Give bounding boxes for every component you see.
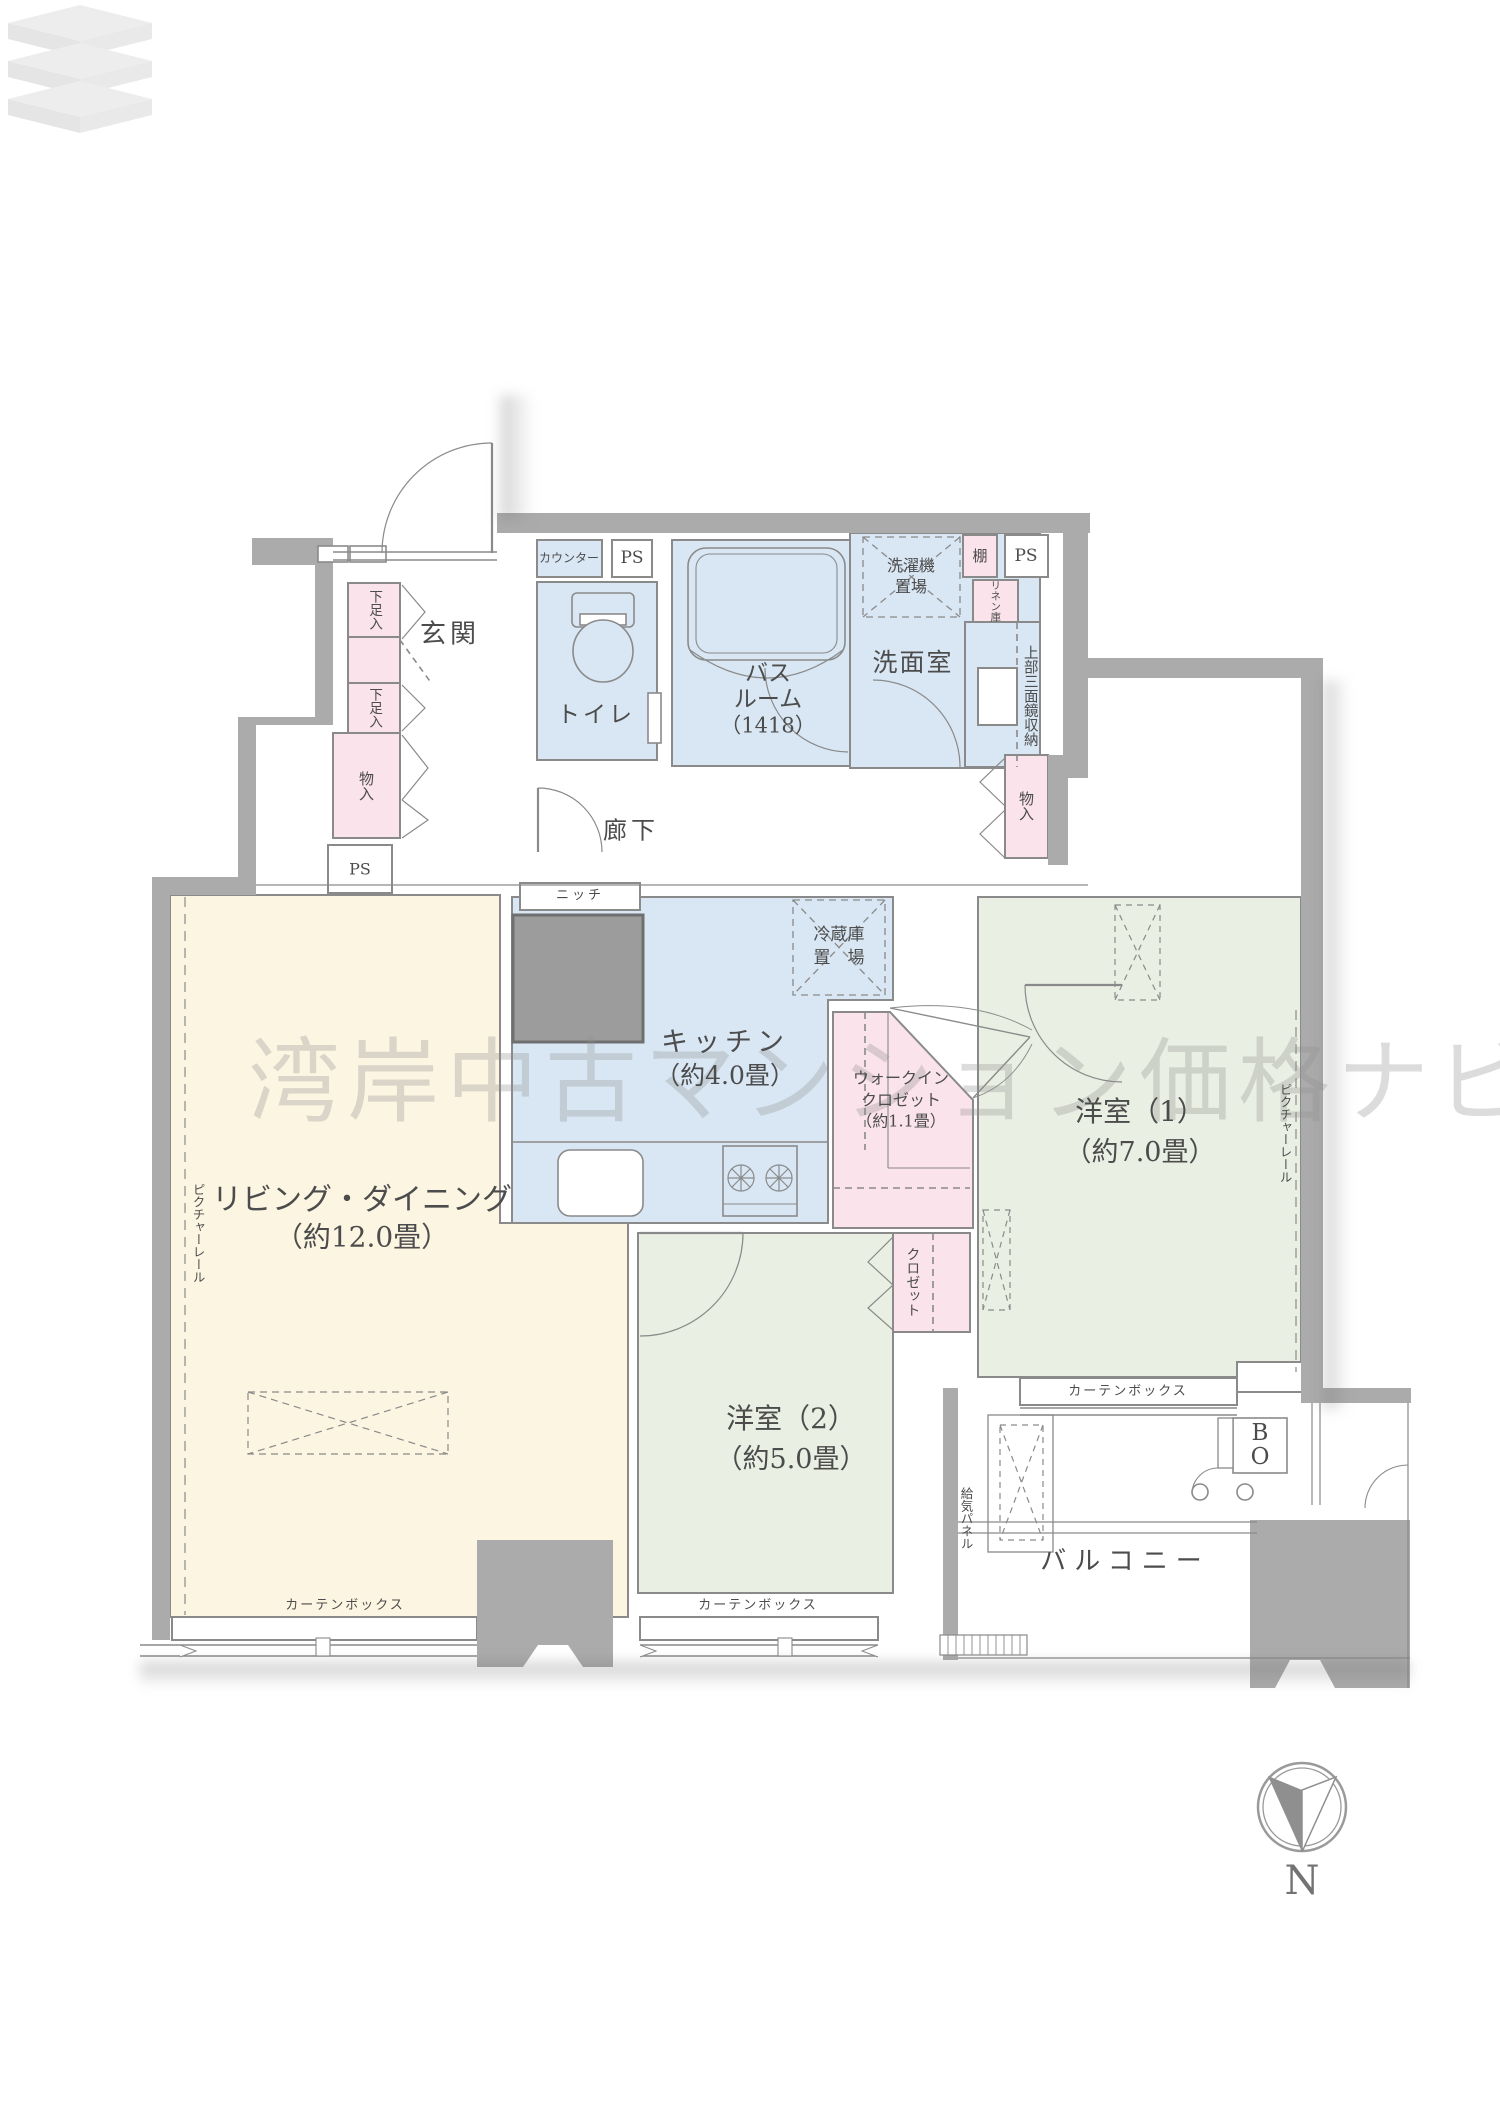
ps-label-left: PS	[349, 859, 371, 878]
bedroom2-label-size: （約5.0畳）	[716, 1440, 867, 1481]
bo-label-line1: B	[1251, 1421, 1270, 1445]
entry-door-arc	[382, 443, 492, 553]
shoe-cabinet-label-1: 下足入	[366, 590, 382, 631]
laundry-label: 洗濯機 置場	[887, 556, 935, 598]
living-dining-label-size: （約12.0畳）	[212, 1219, 512, 1255]
fridge-label: 冷蔵庫 置 場	[814, 924, 865, 970]
curtain-box-label-b2: カーテンボックス	[698, 1598, 818, 1614]
living-dining-label: リビング・ダイニング （約12.0畳）	[212, 1180, 512, 1255]
air-supply-panel-label: 給気パネル	[959, 1487, 974, 1550]
kitchen-label: キッチン （約4.0畳）	[655, 1025, 795, 1093]
niche-label: ニッチ	[556, 888, 604, 904]
bedroom1-label-name: 洋室（1）	[1065, 1091, 1216, 1133]
bathroom-label-line3: （1418）	[720, 713, 815, 737]
living-dining-label-name: リビング・ダイニング	[212, 1180, 512, 1219]
curtain-box-b2	[640, 1617, 878, 1640]
ps-box-bedroom1	[1237, 1362, 1305, 1392]
toilet-label: トイレ	[557, 702, 635, 730]
bathroom-label-line1: バス	[720, 660, 815, 686]
compass-n-label: N	[1285, 1857, 1320, 1905]
picture-rail-label-left: ピクチャーレール	[191, 1183, 206, 1283]
shoe-cabinet-label-2: 下足入	[366, 688, 382, 729]
bedroom2-label: 洋室（2） （約5.0畳）	[716, 1398, 867, 1481]
bedroom2-label-name: 洋室（2）	[716, 1398, 867, 1440]
wic-label-line1: ウォークイン	[853, 1068, 949, 1090]
fridge-label-line1: 冷蔵庫	[814, 924, 865, 947]
wic-label-line3: （約1.1畳）	[853, 1111, 949, 1133]
washroom-label: 洗面室	[872, 648, 953, 678]
closet-label: クロゼット	[904, 1247, 921, 1317]
north-compass	[1258, 1763, 1346, 1852]
hallway-label: 廊下	[603, 817, 659, 846]
linen-label: リネン庫	[989, 580, 1002, 622]
bathroom-label: バス ルーム （1418）	[720, 660, 815, 737]
fridge-label-line2: 置 場	[814, 947, 865, 970]
kitchen-label-name: キッチン	[655, 1025, 795, 1060]
floor-plan: 湾岸中古マンション価格ナビ 玄関 廊下 トイレ バス ルーム （1418） 洗面…	[0, 0, 1500, 2121]
wic-label-line2: クロゼット	[853, 1089, 949, 1111]
bathroom-label-line2: ルーム	[720, 687, 815, 713]
ps-label-toilet: PS	[620, 548, 643, 568]
curtain-box-ld	[172, 1617, 477, 1640]
bo-label-line2: O	[1251, 1445, 1270, 1469]
shadow-entry	[500, 395, 534, 520]
pillar-bottom-center	[477, 1540, 613, 1667]
bo-label: B O	[1251, 1421, 1270, 1469]
picture-rail-label-right: ピクチャーレール	[1278, 1083, 1293, 1183]
shelf-label: 棚	[972, 547, 987, 565]
counter-label: カウンター	[539, 551, 599, 565]
hall-ld-door-arc	[538, 788, 602, 852]
walkin-closet-label: ウォークイン クロゼット （約1.1畳）	[853, 1068, 949, 1133]
bedroom1-label: 洋室（1） （約7.0畳）	[1065, 1091, 1216, 1174]
shoe-cabinet-mid	[348, 637, 400, 683]
balcony-label: バルコニー	[1040, 1546, 1209, 1577]
mirror-cabinet-label: 上部三面鏡収納	[1020, 645, 1037, 747]
watermark-logo	[0, 0, 160, 135]
entrance-label: 玄関	[420, 619, 480, 650]
laundry-label-line2: 置場	[887, 577, 935, 598]
curtain-box-label-ld: カーテンボックス	[285, 1598, 405, 1614]
storage-right-label: 物入	[1017, 791, 1035, 821]
kitchen-label-size: （約4.0畳）	[655, 1060, 795, 1093]
vanity	[978, 668, 1017, 725]
storage-left-label: 物入	[357, 771, 375, 801]
ps-label-washroom: PS	[1014, 546, 1037, 566]
bedroom1-label-size: （約7.0畳）	[1065, 1133, 1216, 1174]
curtain-box-label-b1: カーテンボックス	[1068, 1384, 1188, 1400]
laundry-label-line1: 洗濯機	[887, 556, 935, 577]
shadow-bottom	[140, 1662, 1410, 1688]
